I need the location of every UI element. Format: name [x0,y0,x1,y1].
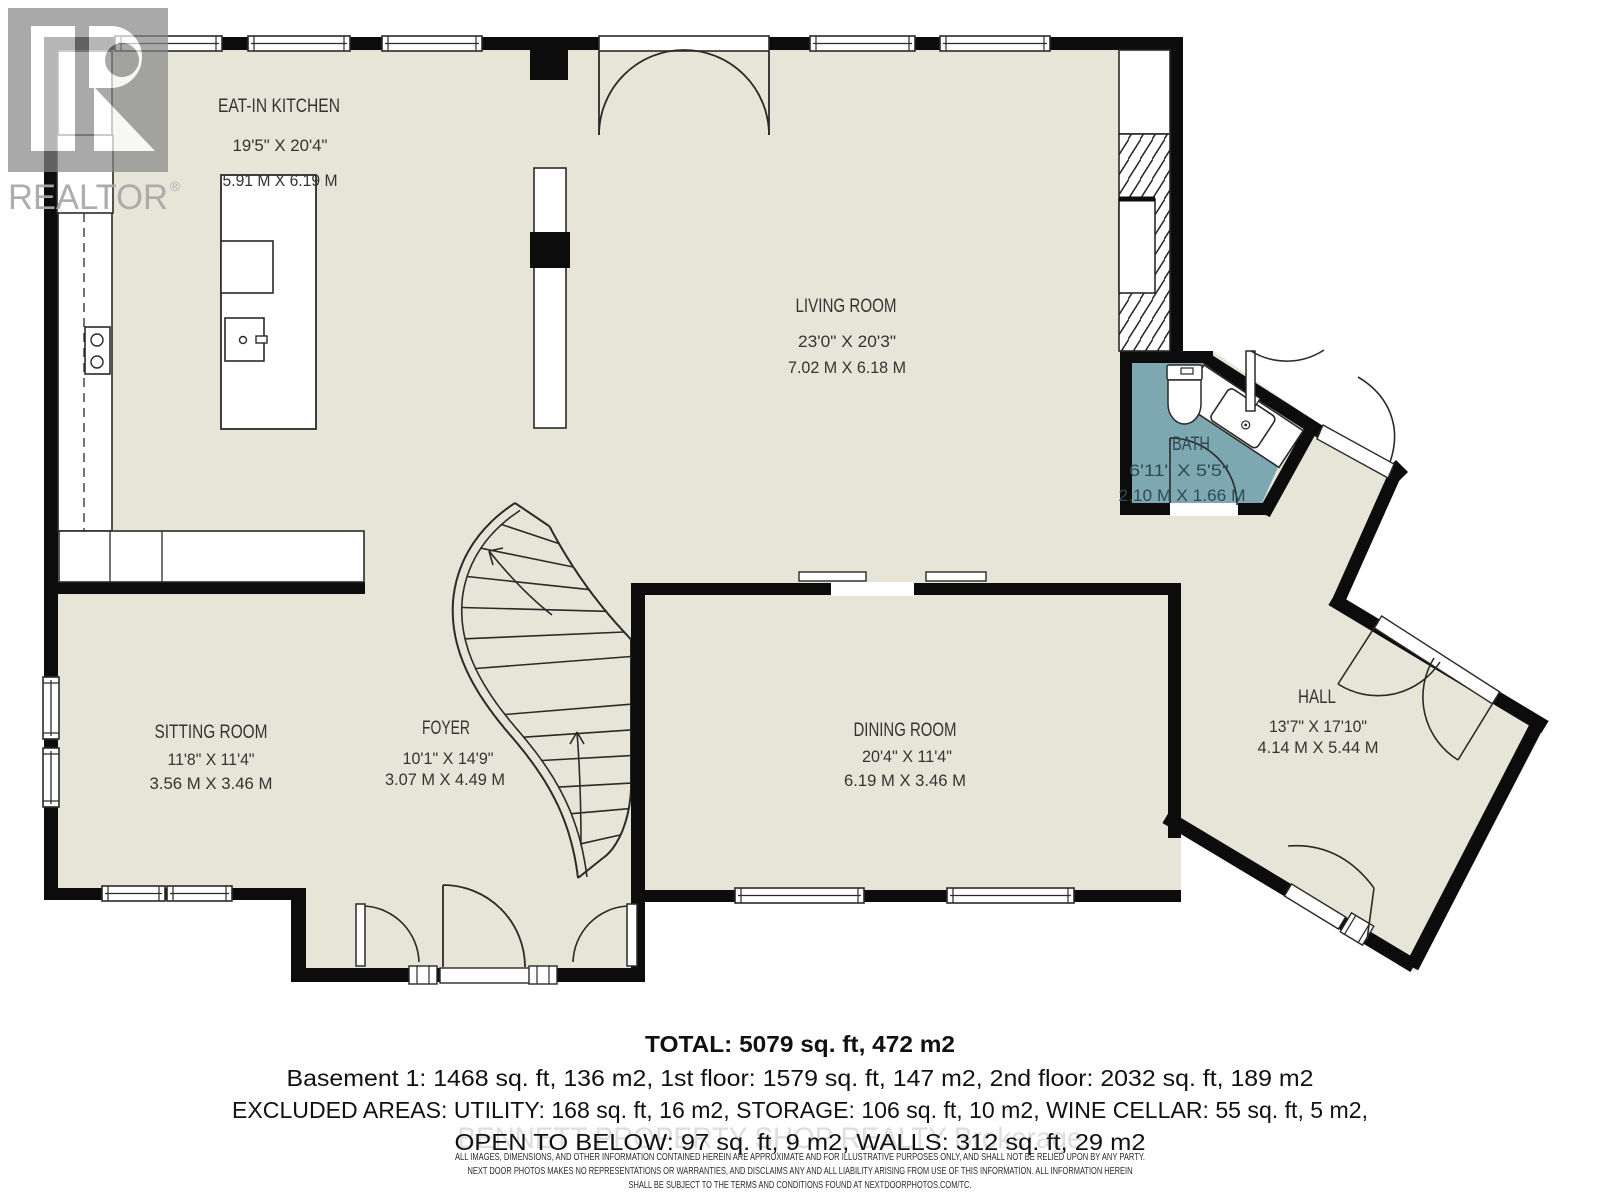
svg-text:19'5" X 20'4": 19'5" X 20'4" [233,136,328,155]
svg-text:SITTING ROOM: SITTING ROOM [155,722,268,743]
svg-text:10'1" X 14'9": 10'1" X 14'9" [403,749,494,768]
svg-text:4.14 M X 5.44 M: 4.14 M X 5.44 M [1258,738,1379,757]
svg-text:3.56 M X 3.46 M: 3.56 M X 3.46 M [150,774,273,793]
svg-text:13'7" X 17'10": 13'7" X 17'10" [1269,717,1367,736]
svg-text:REALTOR: REALTOR [8,178,168,217]
svg-text:Basement 1: 1468 sq. ft, 136 m: Basement 1: 1468 sq. ft, 136 m2, 1st flo… [287,1065,1314,1091]
svg-text:LIVING ROOM: LIVING ROOM [796,296,897,317]
svg-text:NEXT DOOR PHOTOS MAKES NO REPR: NEXT DOOR PHOTOS MAKES NO REPRESENTATION… [468,1166,1133,1177]
svg-text:11'8" X 11'4": 11'8" X 11'4" [168,750,255,769]
svg-text:23'0" X 20'3": 23'0" X 20'3" [798,332,896,351]
svg-text:7.02 M X 6.18 M: 7.02 M X 6.18 M [788,358,906,377]
svg-text:EXCLUDED AREAS: UTILITY: 168 s: EXCLUDED AREAS: UTILITY: 168 sq. ft, 16 … [232,1097,1368,1123]
svg-text:20'4" X 11'4": 20'4" X 11'4" [862,747,952,766]
svg-text:6.19 M X 3.46 M: 6.19 M X 3.46 M [844,771,966,790]
svg-text:2.10 M X 1.66 M: 2.10 M X 1.66 M [1119,486,1246,505]
svg-text:FOYER: FOYER [422,718,470,739]
svg-text:6'11" X 5'5": 6'11" X 5'5" [1129,461,1229,480]
svg-text:EAT-IN KITCHEN: EAT-IN KITCHEN [218,96,340,117]
svg-text:TOTAL: 5079 sq. ft, 472 m2: TOTAL: 5079 sq. ft, 472 m2 [645,1031,955,1057]
svg-text:DINING ROOM: DINING ROOM [854,720,957,741]
svg-text:BATH: BATH [1172,434,1210,455]
svg-text:3.07 M X 4.49 M: 3.07 M X 4.49 M [385,770,505,789]
svg-text:SHALL BE SUBJECT TO THE TERMS: SHALL BE SUBJECT TO THE TERMS AND CONDIT… [629,1180,972,1191]
svg-text:HALL: HALL [1298,687,1336,708]
svg-text:5.91 M X 6.19 M: 5.91 M X 6.19 M [223,171,338,190]
svg-text:®: ® [170,178,181,194]
svg-text:ALL IMAGES, DIMENSIONS, AND OT: ALL IMAGES, DIMENSIONS, AND OTHER INFORM… [455,1152,1145,1163]
